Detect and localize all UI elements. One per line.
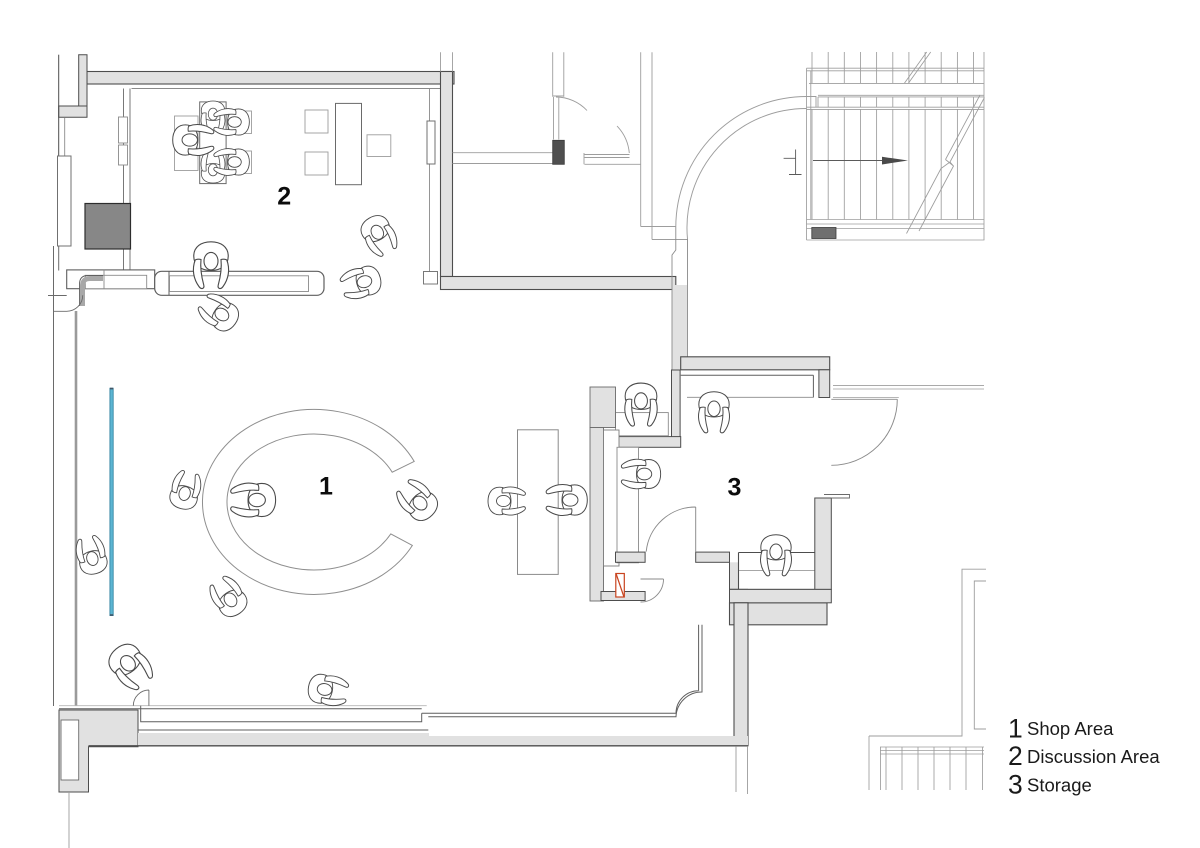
- svg-text:3: 3: [728, 474, 742, 502]
- svg-text:Shop Area: Shop Area: [1027, 718, 1114, 739]
- svg-text:Storage: Storage: [1027, 775, 1092, 796]
- svg-text:Discussion Area: Discussion Area: [1027, 746, 1160, 767]
- svg-text:1: 1: [1008, 714, 1023, 744]
- svg-text:1: 1: [319, 473, 333, 501]
- svg-text:2: 2: [1008, 741, 1023, 771]
- svg-text:2: 2: [277, 183, 291, 211]
- svg-text:3: 3: [1008, 769, 1023, 799]
